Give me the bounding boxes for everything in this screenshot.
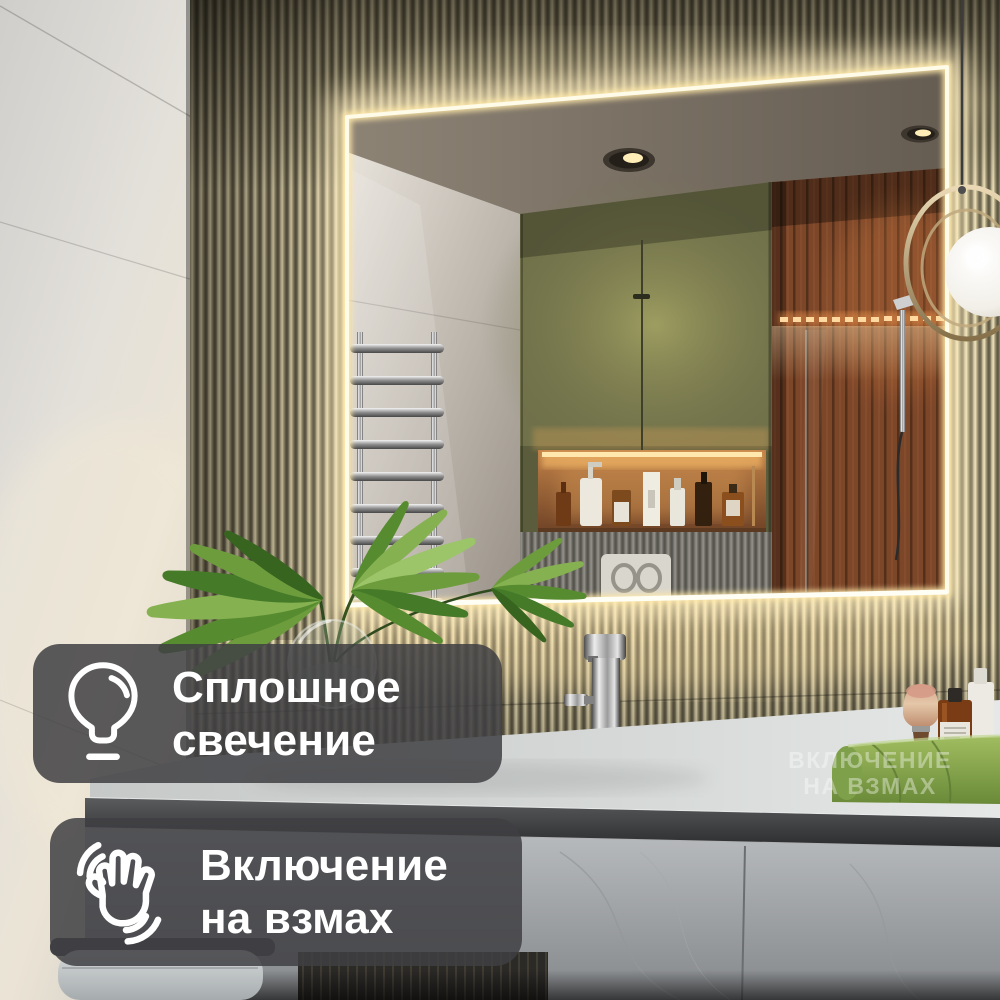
watermark: ВКЛЮЧЕНИЕ НА ВЗМАХ — [784, 747, 956, 799]
badge-line: свечение — [172, 714, 401, 767]
ceiling-spotlight — [901, 126, 939, 143]
watermark-line: НА ВЗМАХ — [784, 773, 956, 799]
badge-line: на взмах — [200, 892, 448, 945]
badge-line: Включение — [200, 839, 448, 892]
badge-text: Сплошное свечение — [172, 661, 401, 767]
feature-badge-wave-activation: Включение на взмах — [50, 818, 522, 966]
badge-line: Сплошное — [172, 661, 401, 714]
watermark-line: ВКЛЮЧЕНИЕ — [784, 747, 956, 773]
lightbulb-icon — [60, 661, 146, 767]
ceiling-spotlight — [603, 148, 655, 172]
product-photo-bathroom-mirror: ВКЛЮЧЕНИЕ НА ВЗМАХ Сплошное свечение Вкл… — [0, 0, 1000, 1000]
badge-text: Включение на взмах — [200, 839, 448, 945]
reflected-wood-wall — [772, 168, 972, 596]
waving-hand-icon — [74, 833, 178, 951]
mirror — [347, 67, 972, 618]
feature-badge-continuous-glow: Сплошное свечение — [33, 644, 502, 783]
reflected-niche-shelf — [538, 450, 766, 534]
